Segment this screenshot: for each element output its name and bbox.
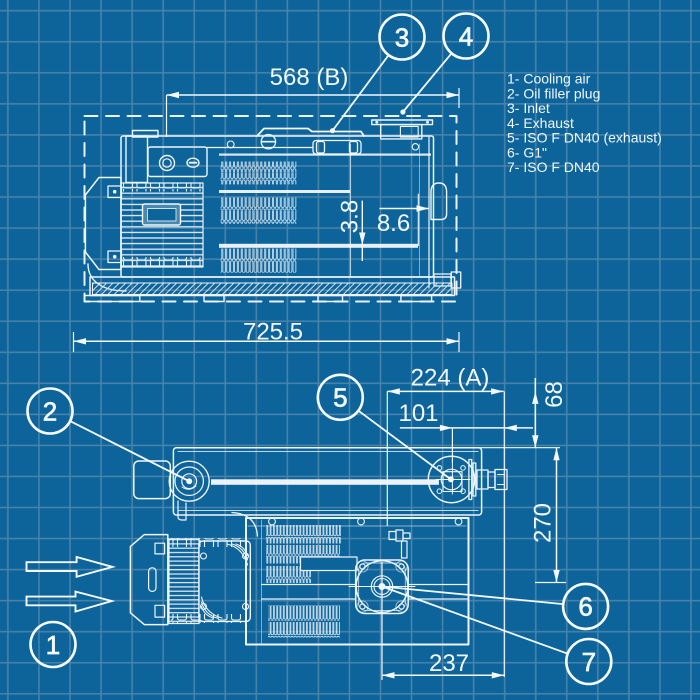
svg-text:6- G1": 6- G1": [507, 144, 547, 160]
svg-text:101: 101: [398, 400, 438, 427]
svg-text:224 (A): 224 (A): [411, 365, 490, 392]
svg-text:3.8: 3.8: [337, 200, 364, 233]
svg-text:3: 3: [395, 22, 409, 52]
svg-text:2- Oil filler plug: 2- Oil filler plug: [507, 85, 600, 101]
svg-text:4- Exhaust: 4- Exhaust: [507, 115, 574, 131]
svg-text:4: 4: [459, 21, 473, 51]
svg-text:568 (B): 568 (B): [270, 64, 349, 91]
svg-text:1: 1: [46, 630, 60, 660]
svg-text:8.6: 8.6: [377, 210, 410, 237]
svg-text:2: 2: [43, 396, 57, 426]
svg-text:7: 7: [582, 647, 596, 677]
svg-text:6: 6: [578, 592, 592, 622]
svg-text:3- Inlet: 3- Inlet: [507, 100, 550, 116]
svg-text:1- Cooling air: 1- Cooling air: [507, 71, 591, 87]
svg-text:270: 270: [530, 503, 557, 543]
svg-text:237: 237: [429, 650, 469, 677]
svg-text:68: 68: [541, 381, 568, 408]
svg-text:5: 5: [333, 383, 347, 413]
svg-text:5- ISO F DN40 (exhaust): 5- ISO F DN40 (exhaust): [507, 130, 662, 146]
svg-text:7- ISO F DN40: 7- ISO F DN40: [507, 159, 600, 175]
